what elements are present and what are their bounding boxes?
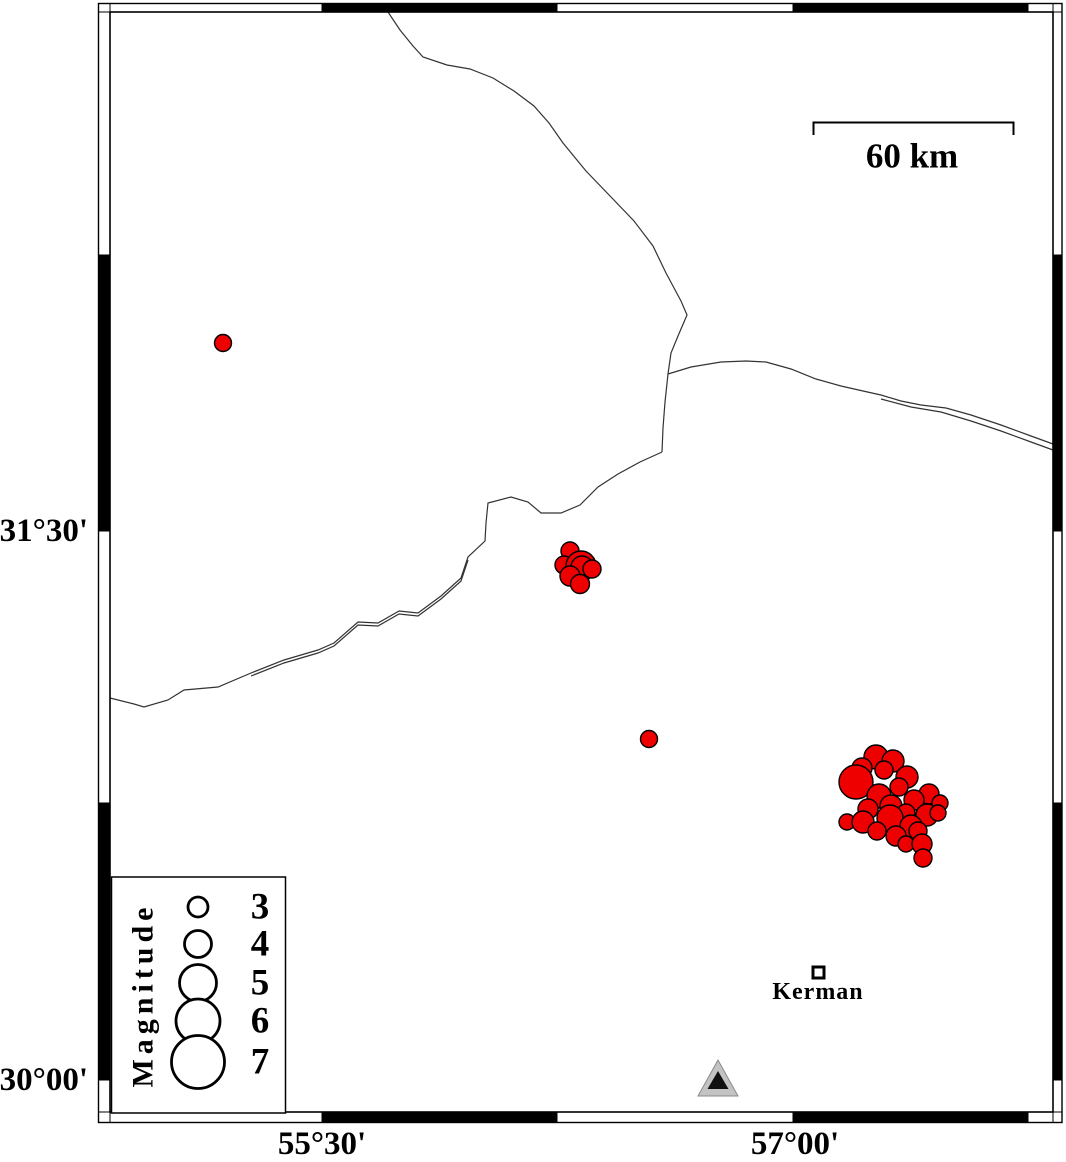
city-marker-group: Kerman	[772, 967, 863, 1005]
earthquake-marker	[914, 849, 932, 867]
fault-line	[251, 560, 468, 676]
legend-magnitude-circle	[172, 1036, 225, 1089]
station-marker-group	[698, 1060, 738, 1096]
frame-segment-bottom	[793, 1112, 1028, 1123]
frame-segment-bottom	[322, 1112, 557, 1123]
fault-line	[668, 361, 1053, 444]
frame-segment-top	[793, 4, 1028, 13]
legend-magnitude-circle	[180, 965, 217, 1002]
scale-bar-label: 60 km	[866, 137, 958, 176]
lat-label-31-30: 31°30'	[0, 513, 88, 549]
lat-label-30-00: 30°00'	[0, 1062, 88, 1098]
scale-bar: 60 km	[814, 123, 1014, 176]
earthquake-marker	[868, 822, 886, 840]
magnitude-legend: Magnitude 34567	[112, 877, 286, 1113]
earthquake-marker	[571, 575, 590, 594]
longitude-labels: 55°30' 57°00'	[278, 1126, 839, 1162]
frame-segment-right	[1053, 803, 1062, 1080]
legend-title: Magnitude	[127, 902, 160, 1087]
earthquake-marker	[583, 560, 601, 578]
earthquake-marker	[930, 805, 946, 821]
fault-lines	[110, 12, 1053, 707]
frame-segment-left	[99, 803, 111, 1080]
city-square-marker	[813, 967, 824, 978]
frame-segment-left	[99, 255, 111, 531]
legend-mag-label: 7	[251, 1042, 270, 1083]
seismicity-map-page: 60 km 31°30' 30°00' 55°30' 57°00' Magnit…	[0, 0, 1066, 1162]
legend-magnitude-circle	[185, 931, 212, 958]
earthquake-markers	[215, 335, 949, 868]
lon-label-55-30: 55°30'	[278, 1126, 366, 1162]
lon-label-57-00: 57°00'	[751, 1126, 839, 1162]
fault-line	[881, 399, 1053, 450]
legend-mag-label: 6	[251, 1001, 270, 1042]
legend-magnitude-circle	[188, 897, 208, 917]
legend-mag-label: 3	[251, 887, 270, 928]
earthquake-marker	[215, 335, 232, 352]
earthquake-marker	[875, 761, 893, 779]
legend-mag-label: 5	[251, 963, 270, 1004]
earthquake-marker	[641, 731, 658, 748]
fault-line	[388, 12, 687, 452]
latitude-labels: 31°30' 30°00'	[0, 513, 88, 1098]
frame-segment-top	[322, 4, 557, 13]
frame-segment-right	[1053, 255, 1062, 531]
legend-mag-label: 4	[251, 924, 270, 965]
scale-bar-bracket	[814, 123, 1014, 136]
earthquake-marker	[890, 778, 908, 796]
map-canvas: 60 km 31°30' 30°00' 55°30' 57°00' Magnit…	[0, 0, 1066, 1162]
city-label: Kerman	[772, 979, 863, 1005]
